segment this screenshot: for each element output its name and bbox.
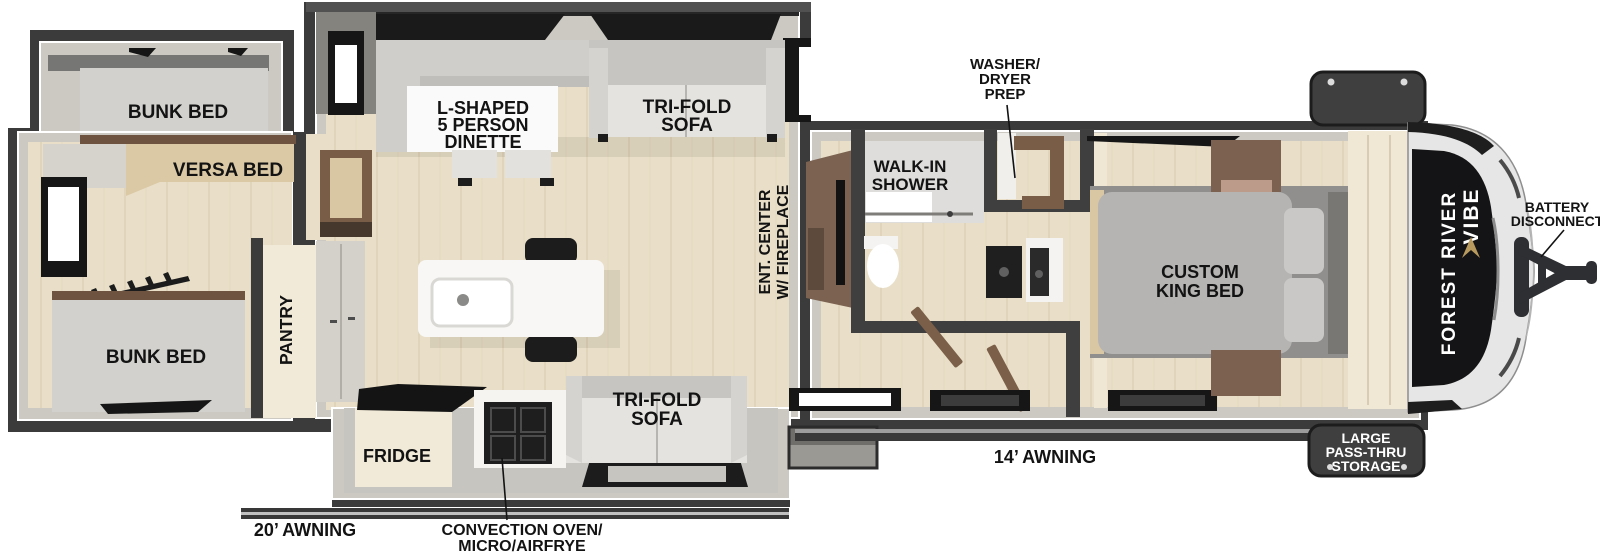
svg-text:WALK-IN: WALK-IN (874, 157, 947, 176)
svg-text:DISCONNECT: DISCONNECT (1511, 213, 1600, 229)
svg-text:PANTRY: PANTRY (276, 295, 296, 365)
svg-text:VIBE: VIBE (1460, 187, 1483, 244)
svg-text:BUNK BED: BUNK BED (128, 102, 228, 123)
svg-text:W/ FIREPLACE: W/ FIREPLACE (775, 184, 792, 299)
svg-text:FOREST RIVER: FOREST RIVER (1439, 191, 1460, 355)
svg-text:KING BED: KING BED (1156, 281, 1244, 301)
svg-text:14’ AWNING: 14’ AWNING (994, 447, 1096, 467)
svg-text:STORAGE: STORAGE (1332, 458, 1401, 474)
svg-text:PREP: PREP (985, 86, 1026, 103)
svg-text:VERSA BED: VERSA BED (173, 160, 283, 181)
svg-text:SOFA: SOFA (631, 409, 683, 430)
svg-text:SHOWER: SHOWER (872, 175, 949, 194)
svg-text:TRI-FOLD: TRI-FOLD (613, 390, 702, 411)
svg-text:ENT. CENTER: ENT. CENTER (757, 189, 774, 294)
svg-text:DINETTE: DINETTE (444, 132, 521, 152)
svg-text:MICRO/AIRFRYE: MICRO/AIRFRYE (458, 538, 586, 552)
svg-text:BUNK BED: BUNK BED (106, 347, 206, 368)
svg-text:20’ AWNING: 20’ AWNING (254, 520, 356, 540)
svg-text:CUSTOM: CUSTOM (1161, 262, 1239, 282)
svg-text:SOFA: SOFA (661, 115, 713, 136)
svg-text:FRIDGE: FRIDGE (363, 446, 431, 466)
svg-text:CONVECTION OVEN/: CONVECTION OVEN/ (442, 522, 603, 539)
